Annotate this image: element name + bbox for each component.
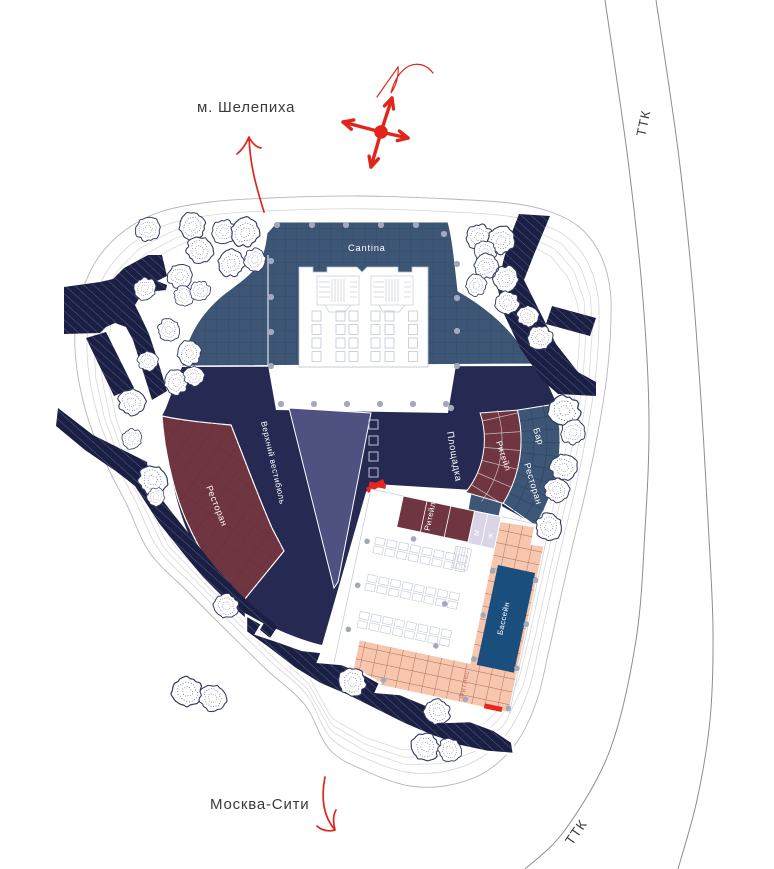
svg-text:ТТК: ТТК xyxy=(562,817,590,848)
svg-text:Cantina: Cantina xyxy=(348,243,386,253)
svg-text:Москва-Сити: Москва-Сити xyxy=(210,796,309,813)
svg-text:ТТК: ТТК xyxy=(633,109,653,138)
svg-text:м. Шелепиха: м. Шелепиха xyxy=(197,99,295,116)
